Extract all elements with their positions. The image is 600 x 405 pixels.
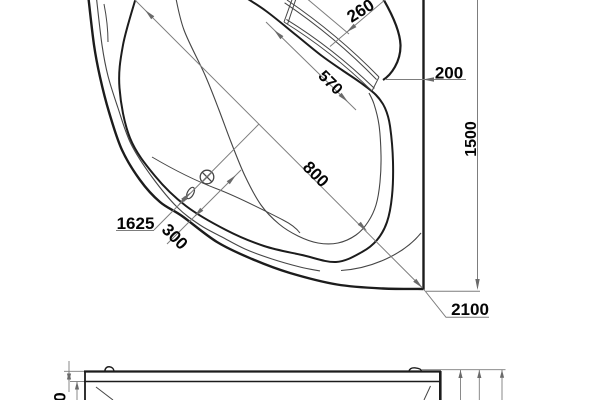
svg-text:2100: 2100 <box>451 300 489 319</box>
svg-text:0: 0 <box>51 392 70 400</box>
svg-text:1500: 1500 <box>463 121 480 157</box>
svg-text:1625: 1625 <box>117 214 155 233</box>
svg-text:200: 200 <box>435 64 463 83</box>
